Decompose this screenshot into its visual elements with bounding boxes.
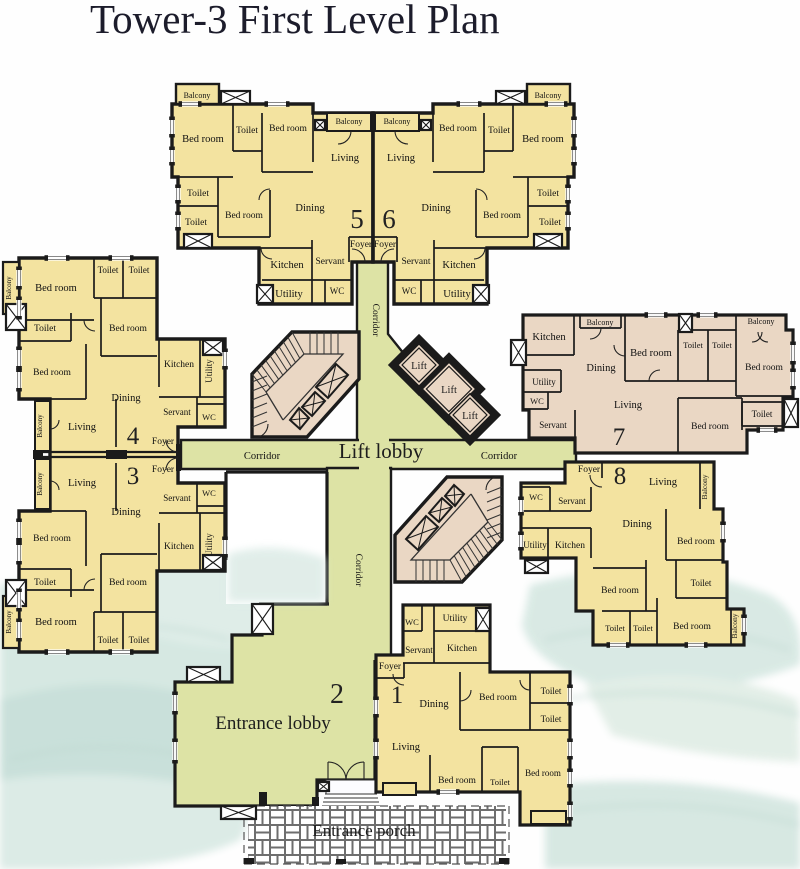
svg-text:Kitchen: Kitchen: [164, 542, 194, 552]
svg-text:Toilet: Toilet: [691, 578, 712, 588]
svg-text:Foyer: Foyer: [379, 662, 402, 672]
svg-text:Kitchen: Kitchen: [532, 332, 566, 343]
svg-text:Toilet: Toilet: [541, 714, 562, 724]
svg-text:WC: WC: [202, 412, 216, 422]
svg-text:Utility: Utility: [204, 359, 214, 383]
svg-text:Foyer: Foyer: [152, 465, 175, 475]
svg-text:Bed room: Bed room: [522, 134, 564, 145]
svg-text:Balcony: Balcony: [5, 276, 13, 300]
svg-text:Entrance lobby: Entrance lobby: [215, 713, 331, 734]
svg-text:Balcony: Balcony: [748, 317, 775, 326]
svg-text:Balcony: Balcony: [5, 610, 13, 634]
svg-text:4: 4: [127, 423, 140, 450]
svg-text:Bed room: Bed room: [269, 124, 307, 134]
svg-text:Lift: Lift: [441, 385, 457, 396]
svg-text:7: 7: [613, 424, 626, 451]
svg-text:Bed room: Bed room: [35, 283, 77, 294]
svg-text:Living: Living: [392, 742, 421, 753]
svg-text:Utility: Utility: [275, 289, 303, 300]
svg-text:Toilet: Toilet: [605, 623, 625, 633]
svg-text:Bed room: Bed room: [630, 348, 672, 359]
svg-text:Lift: Lift: [462, 411, 478, 422]
svg-text:Servant: Servant: [163, 407, 191, 417]
svg-text:Bed room: Bed room: [33, 368, 71, 378]
svg-text:Bed room: Bed room: [109, 324, 147, 334]
svg-text:Toilet: Toilet: [34, 324, 56, 334]
svg-text:Servant: Servant: [558, 496, 586, 506]
svg-text:Balcony: Balcony: [36, 472, 44, 496]
svg-text:Foyer: Foyer: [578, 465, 601, 475]
svg-text:Utility: Utility: [443, 289, 471, 300]
svg-text:WC: WC: [202, 488, 216, 498]
svg-text:Corridor: Corridor: [481, 451, 518, 462]
svg-text:Utility: Utility: [523, 540, 547, 550]
svg-text:Servant: Servant: [401, 257, 430, 267]
svg-text:Toilet: Toilet: [541, 686, 562, 696]
svg-text:Foyer: Foyer: [152, 437, 175, 447]
svg-text:Kitchen: Kitchen: [164, 360, 194, 370]
svg-text:Living: Living: [68, 422, 97, 433]
svg-text:Toilet: Toilet: [185, 218, 207, 228]
svg-text:Toilet: Toilet: [490, 777, 510, 787]
svg-text:Toilet: Toilet: [537, 189, 559, 199]
svg-text:Utility: Utility: [443, 614, 468, 624]
svg-text:Toilet: Toilet: [236, 126, 258, 136]
svg-text:Living: Living: [331, 153, 360, 164]
svg-text:Toilet: Toilet: [129, 265, 150, 275]
svg-text:Toilet: Toilet: [129, 635, 150, 645]
svg-text:2: 2: [330, 679, 344, 710]
svg-text:Dining: Dining: [586, 363, 616, 374]
svg-text:Corridor: Corridor: [370, 304, 380, 338]
svg-text:Utility: Utility: [204, 533, 214, 557]
svg-text:Toilet: Toilet: [683, 340, 703, 350]
svg-text:Servant: Servant: [539, 420, 567, 430]
svg-text:Bed room: Bed room: [182, 134, 224, 145]
svg-text:Bed room: Bed room: [109, 578, 147, 588]
svg-text:Balcony: Balcony: [384, 117, 411, 126]
svg-text:3: 3: [127, 463, 140, 490]
svg-text:Servant: Servant: [163, 493, 191, 503]
svg-text:Bed room: Bed room: [677, 537, 715, 547]
svg-text:Entrance porch: Entrance porch: [312, 821, 416, 840]
svg-text:Toilet: Toilet: [34, 578, 56, 588]
svg-text:Living: Living: [68, 478, 97, 489]
svg-text:Bed room: Bed room: [691, 422, 729, 432]
svg-text:Bed room: Bed room: [438, 776, 476, 786]
svg-text:Utility: Utility: [532, 377, 556, 387]
svg-text:Balcony: Balcony: [336, 117, 363, 126]
svg-text:Dining: Dining: [111, 393, 141, 404]
svg-text:WC: WC: [530, 396, 544, 406]
svg-text:Bed room: Bed room: [601, 586, 639, 596]
svg-text:Kitchen: Kitchen: [270, 260, 304, 271]
svg-text:WC: WC: [330, 286, 345, 296]
svg-text:WC: WC: [529, 492, 543, 502]
svg-text:Bed room: Bed room: [479, 693, 517, 703]
svg-text:Toilet: Toilet: [187, 189, 209, 199]
svg-text:Kitchen: Kitchen: [447, 644, 477, 654]
svg-text:Bed room: Bed room: [745, 363, 783, 373]
svg-text:WC: WC: [402, 286, 417, 296]
svg-text:Balcony: Balcony: [730, 613, 739, 638]
svg-text:Dining: Dining: [421, 203, 451, 214]
svg-text:Living: Living: [649, 477, 678, 488]
svg-text:Bed room: Bed room: [225, 211, 263, 221]
svg-text:Dining: Dining: [622, 519, 652, 530]
svg-text:8: 8: [614, 463, 627, 490]
svg-text:Foyer: Foyer: [350, 240, 373, 250]
svg-text:Bed room: Bed room: [35, 617, 77, 628]
svg-text:Toilet: Toilet: [633, 623, 653, 633]
svg-text:Bed room: Bed room: [439, 124, 477, 134]
svg-text:Bed room: Bed room: [483, 211, 521, 221]
svg-text:Lift lobby: Lift lobby: [339, 439, 424, 463]
svg-text:Servant: Servant: [405, 645, 433, 655]
svg-text:5: 5: [350, 204, 364, 234]
svg-text:Tower-3 First Level Plan: Tower-3 First Level Plan: [90, 0, 500, 42]
svg-text:Toilet: Toilet: [539, 218, 561, 228]
svg-text:Corridor: Corridor: [244, 451, 281, 462]
svg-text:Kitchen: Kitchen: [442, 260, 476, 271]
svg-text:Bed room: Bed room: [33, 534, 71, 544]
svg-text:Balcony: Balcony: [700, 474, 709, 499]
svg-text:Toilet: Toilet: [98, 635, 119, 645]
svg-text:Lift: Lift: [411, 361, 427, 372]
svg-text:Toilet: Toilet: [488, 126, 510, 136]
svg-text:Bed room: Bed room: [525, 768, 561, 778]
svg-text:Balcony: Balcony: [535, 91, 562, 100]
svg-text:Toilet: Toilet: [712, 340, 732, 350]
svg-text:Corridor: Corridor: [353, 554, 363, 588]
svg-text:Toilet: Toilet: [752, 409, 773, 419]
svg-text:Balcony: Balcony: [587, 318, 614, 327]
svg-text:6: 6: [382, 204, 396, 234]
svg-text:Living: Living: [614, 400, 643, 411]
svg-text:Living: Living: [387, 153, 416, 164]
svg-text:1: 1: [391, 682, 404, 709]
svg-text:Balcony: Balcony: [184, 91, 211, 100]
svg-text:Dining: Dining: [419, 699, 449, 710]
svg-text:Bed room: Bed room: [673, 622, 711, 632]
svg-text:Dining: Dining: [295, 203, 325, 214]
svg-text:Kitchen: Kitchen: [555, 541, 585, 551]
svg-text:Balcony: Balcony: [36, 414, 44, 438]
svg-text:Dining: Dining: [111, 507, 141, 518]
svg-text:Toilet: Toilet: [98, 265, 119, 275]
svg-text:Servant: Servant: [315, 257, 344, 267]
svg-text:WC: WC: [405, 617, 419, 627]
